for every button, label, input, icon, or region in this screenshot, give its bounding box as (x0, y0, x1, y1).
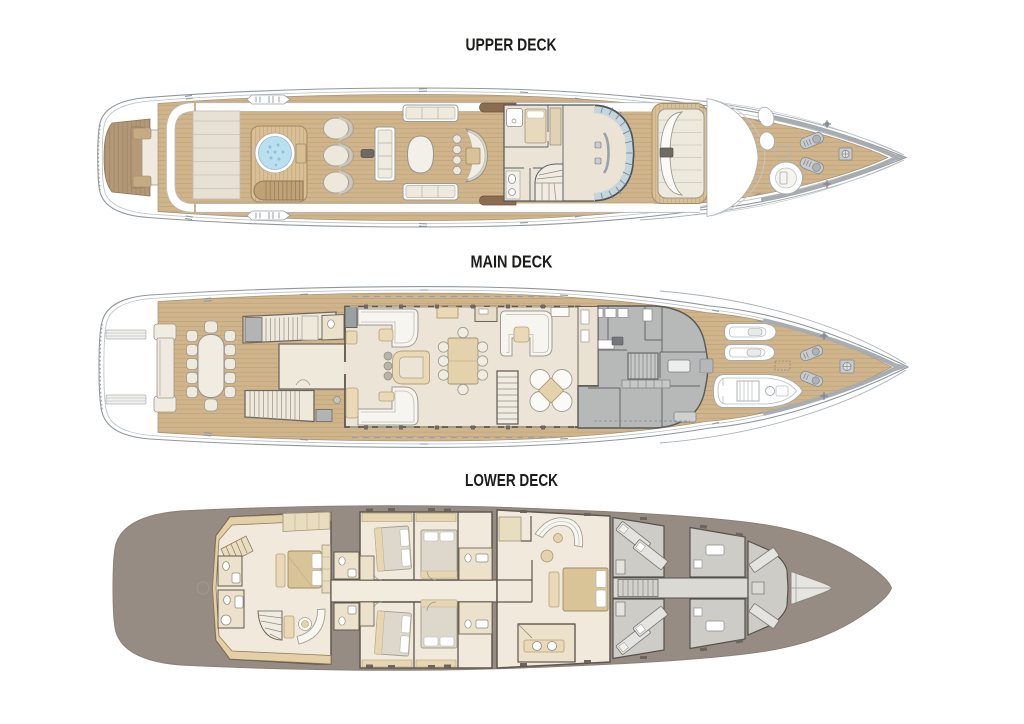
svg-text:UPPER DECK: UPPER DECK (466, 35, 557, 55)
svg-text:LOWER DECK: LOWER DECK (465, 470, 558, 490)
svg-text:MAIN DECK: MAIN DECK (471, 252, 553, 272)
